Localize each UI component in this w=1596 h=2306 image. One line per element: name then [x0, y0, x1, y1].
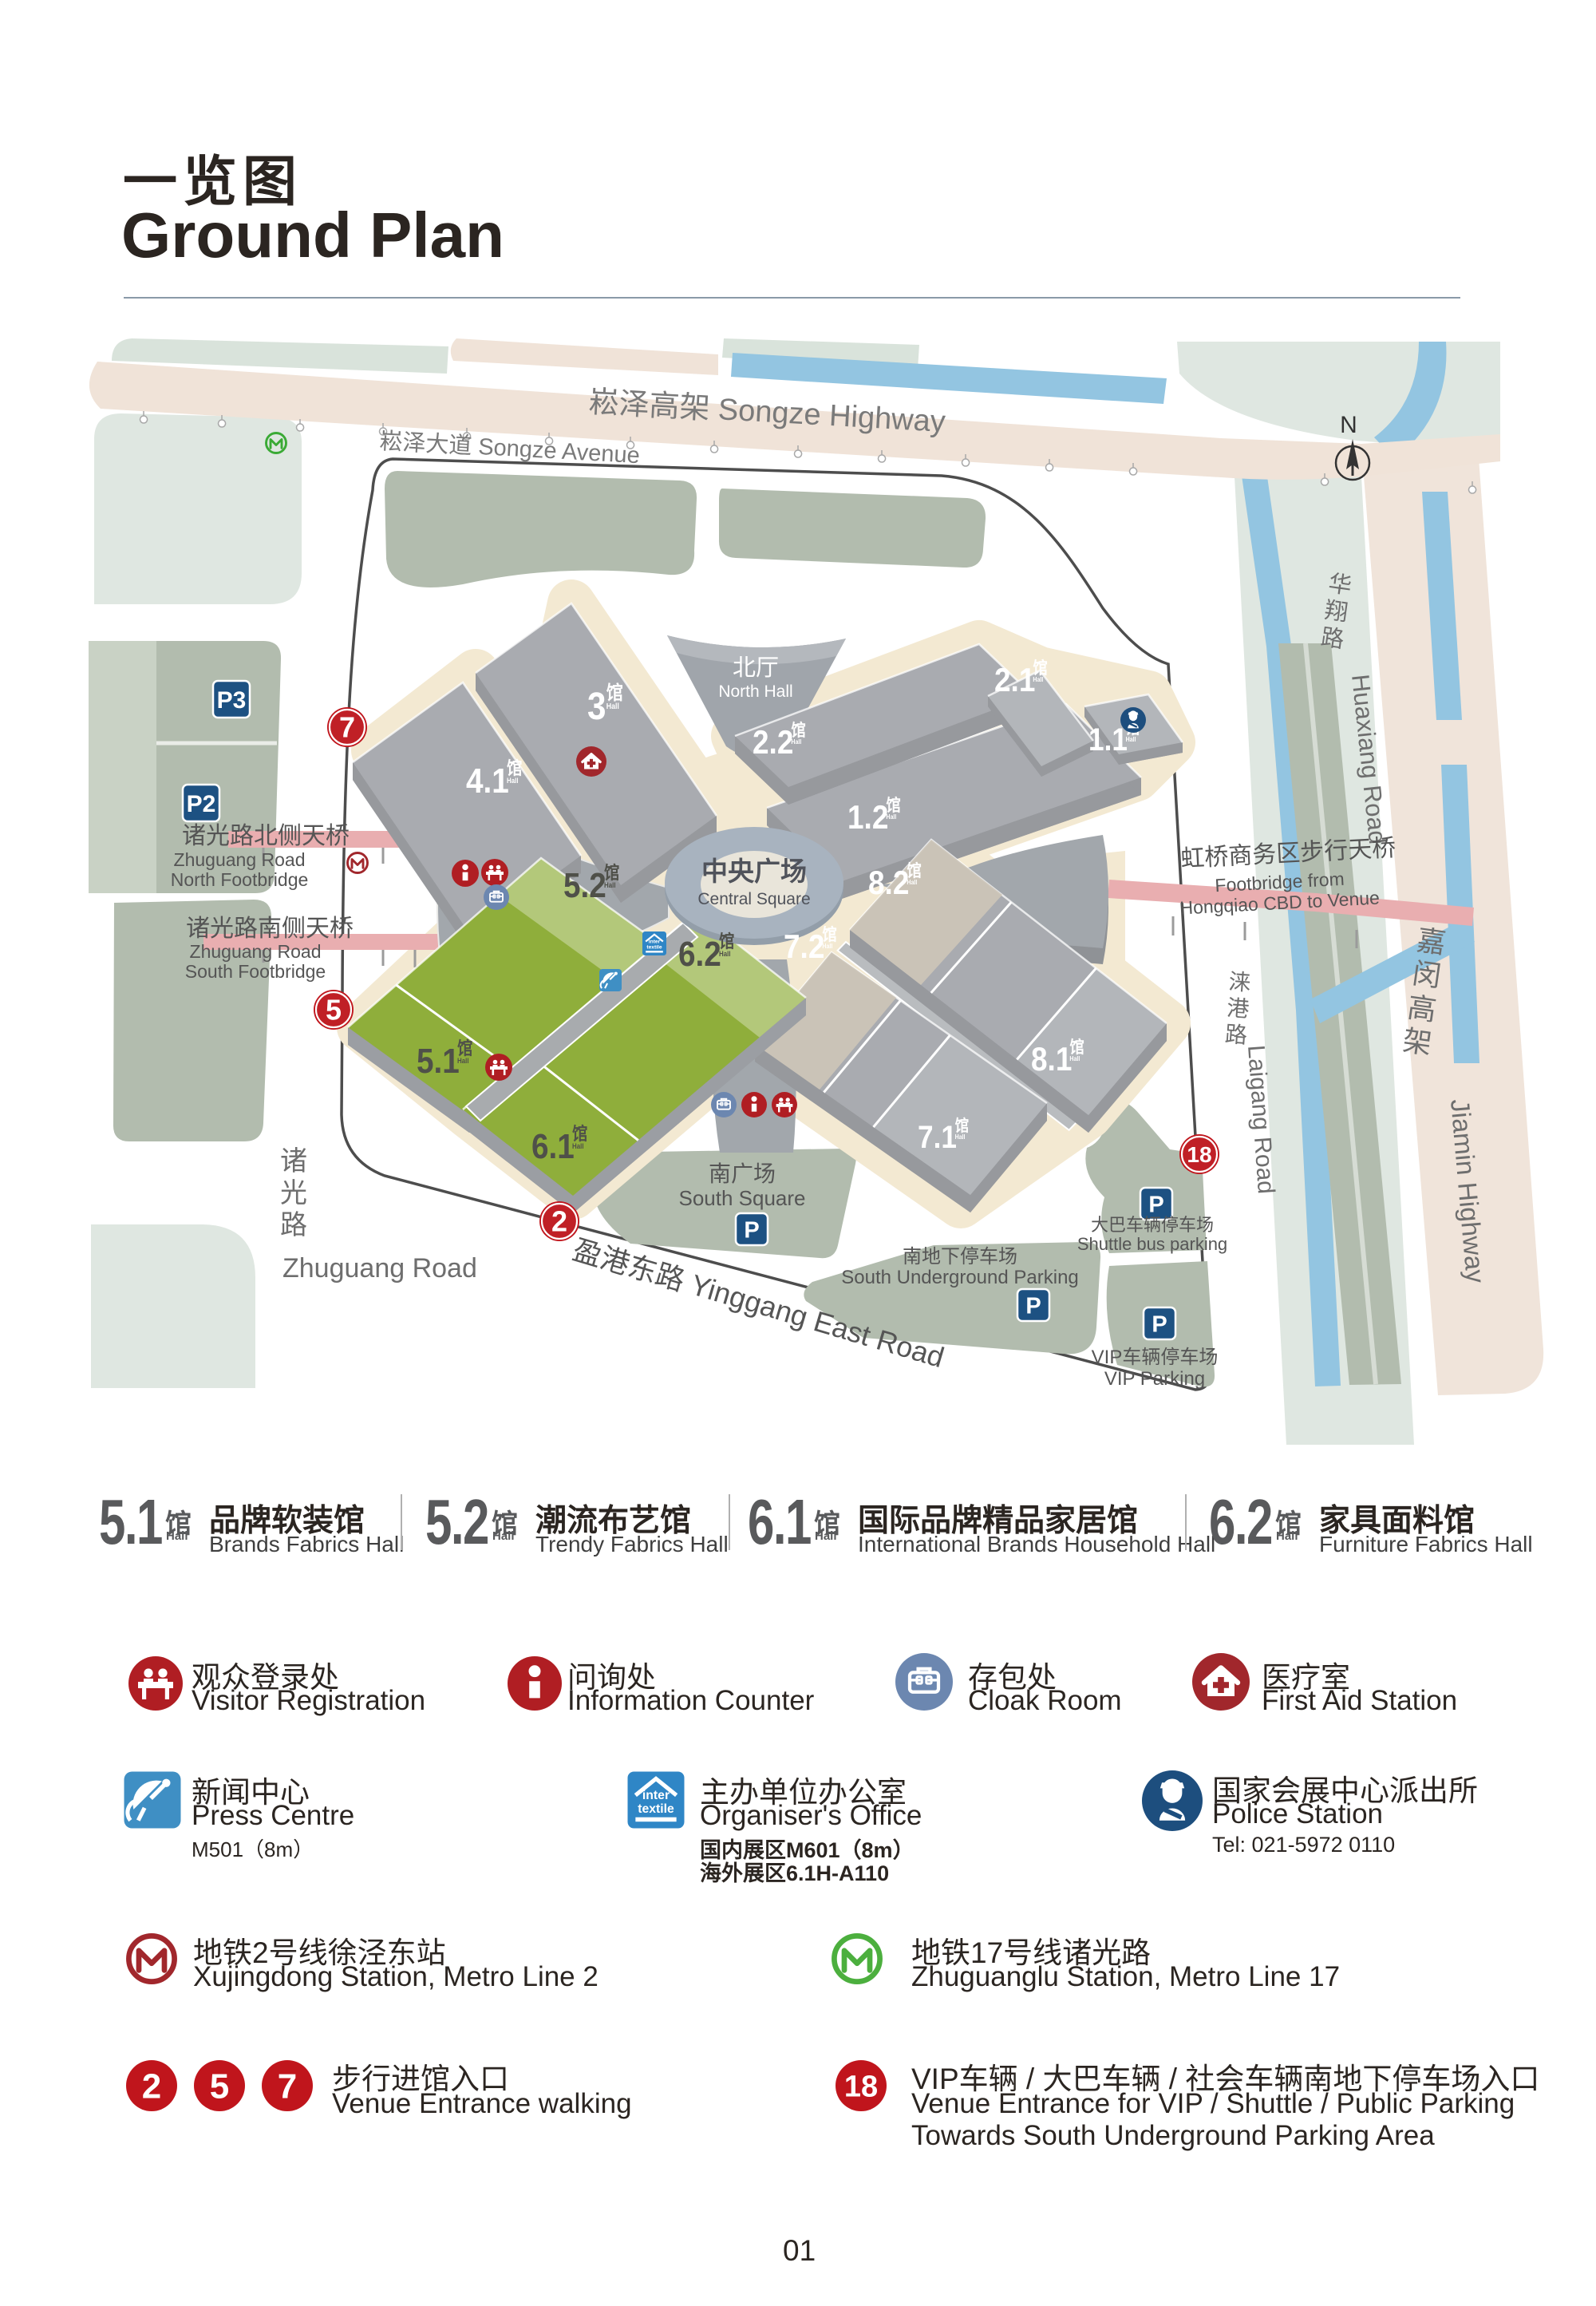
svg-text:Zhuguang Road: Zhuguang Road [282, 1253, 477, 1284]
svg-text:Hall: Hall [791, 738, 801, 746]
svg-text:嘉: 嘉 [1415, 924, 1448, 960]
svg-text:馆: 馆 [572, 1124, 587, 1144]
svg-text:8.2: 8.2 [868, 864, 909, 902]
svg-text:Hall: Hall [1033, 676, 1043, 684]
svg-text:18: 18 [844, 2070, 878, 2103]
svg-text:2.2: 2.2 [753, 724, 793, 761]
svg-text:P3: P3 [217, 687, 247, 714]
svg-text:P: P [1148, 1192, 1163, 1217]
svg-text:8.1: 8.1 [1031, 1041, 1072, 1078]
svg-text:北厅: 北厅 [733, 655, 779, 681]
svg-text:光: 光 [280, 1178, 307, 1208]
svg-text:Hall: Hall [719, 950, 731, 959]
svg-text:5.2: 5.2 [563, 865, 606, 905]
svg-text:2.1: 2.1 [994, 662, 1035, 699]
svg-text:5.1: 5.1 [417, 1041, 460, 1081]
svg-text:7.1: 7.1 [918, 1119, 957, 1155]
svg-text:Hall: Hall [1069, 1055, 1080, 1063]
svg-text:Central Square: Central Square [697, 890, 810, 908]
svg-text:North Footbridge: North Footbridge [171, 869, 309, 890]
svg-text:7.2: 7.2 [784, 928, 824, 966]
svg-text:港: 港 [1226, 995, 1250, 1022]
svg-text:South Footbridge: South Footbridge [185, 961, 326, 982]
svg-text:P2: P2 [187, 791, 216, 817]
svg-text:Shuttle bus parking: Shuttle bus parking [1077, 1234, 1227, 1254]
svg-text:馆: 馆 [606, 682, 623, 704]
svg-text:Hall: Hall [1126, 736, 1136, 744]
svg-text:N: N [1340, 412, 1357, 438]
svg-text:1.1: 1.1 [1088, 722, 1128, 757]
svg-text:textile: textile [638, 1802, 674, 1816]
svg-text:4.1: 4.1 [466, 761, 509, 801]
svg-text:Hall: Hall [572, 1142, 584, 1151]
svg-text:South Underground Parking: South Underground Parking [841, 1267, 1079, 1288]
svg-text:3: 3 [587, 684, 606, 727]
svg-text:6.1: 6.1 [531, 1126, 575, 1166]
svg-text:Hall: Hall [955, 1133, 966, 1141]
svg-text:Hall: Hall [822, 943, 832, 951]
svg-text:18: 18 [1187, 1142, 1211, 1167]
svg-text:馆: 馆 [955, 1116, 970, 1134]
svg-text:高: 高 [1405, 991, 1438, 1027]
svg-text:诸: 诸 [280, 1146, 307, 1177]
svg-text:Hall: Hall [886, 813, 896, 821]
svg-text:馆: 馆 [719, 931, 734, 951]
svg-text:馆: 馆 [507, 758, 522, 778]
svg-text:闵: 闵 [1410, 956, 1443, 993]
svg-text:textile: textile [646, 945, 662, 951]
svg-text:inter: inter [649, 939, 661, 945]
svg-text:VIP Parking: VIP Parking [1104, 1368, 1205, 1390]
svg-text:南广场: 南广场 [709, 1161, 776, 1186]
svg-text:华: 华 [1327, 570, 1353, 599]
svg-text:中央广场: 中央广场 [701, 856, 807, 886]
svg-text:inter: inter [642, 1789, 670, 1802]
svg-text:South Square: South Square [678, 1186, 805, 1210]
svg-text:Hall: Hall [604, 881, 616, 890]
svg-text:P: P [1025, 1293, 1041, 1319]
svg-text:7: 7 [339, 711, 355, 744]
svg-text:2: 2 [142, 2067, 161, 2106]
svg-text:Hall: Hall [457, 1057, 469, 1066]
svg-text:VIP车辆停车场: VIP车辆停车场 [1092, 1347, 1219, 1368]
svg-text:翔: 翔 [1323, 597, 1349, 627]
svg-text:诸光路北侧天桥: 诸光路北侧天桥 [182, 823, 350, 849]
svg-text:Hall: Hall [907, 879, 917, 887]
svg-text:Hall: Hall [507, 777, 519, 785]
svg-text:馆: 馆 [457, 1038, 472, 1058]
svg-text:P: P [744, 1217, 759, 1243]
svg-text:6.2: 6.2 [678, 934, 721, 974]
svg-text:架: 架 [1400, 1024, 1433, 1061]
svg-text:诸光路南侧天桥: 诸光路南侧天桥 [186, 916, 354, 942]
svg-text:5: 5 [326, 994, 342, 1026]
svg-text:涞: 涞 [1228, 969, 1252, 995]
svg-text:大巴车辆停车场: 大巴车辆停车场 [1091, 1215, 1214, 1235]
svg-text:7: 7 [278, 2067, 297, 2106]
svg-text:Hall: Hall [606, 701, 619, 710]
svg-text:Zhuguang Road: Zhuguang Road [174, 849, 306, 870]
svg-text:2: 2 [551, 1205, 567, 1238]
svg-text:路: 路 [280, 1210, 307, 1240]
svg-text:南地下停车场: 南地下停车场 [903, 1246, 1017, 1268]
svg-text:馆: 馆 [604, 863, 619, 883]
svg-text:Zhuguang Road: Zhuguang Road [190, 941, 322, 962]
svg-text:1.2: 1.2 [847, 799, 888, 837]
svg-text:路: 路 [1224, 1022, 1248, 1048]
svg-text:5: 5 [210, 2067, 229, 2106]
svg-text:North Hall: North Hall [718, 682, 792, 701]
svg-text:路: 路 [1319, 624, 1345, 654]
svg-text:P: P [1152, 1311, 1167, 1337]
